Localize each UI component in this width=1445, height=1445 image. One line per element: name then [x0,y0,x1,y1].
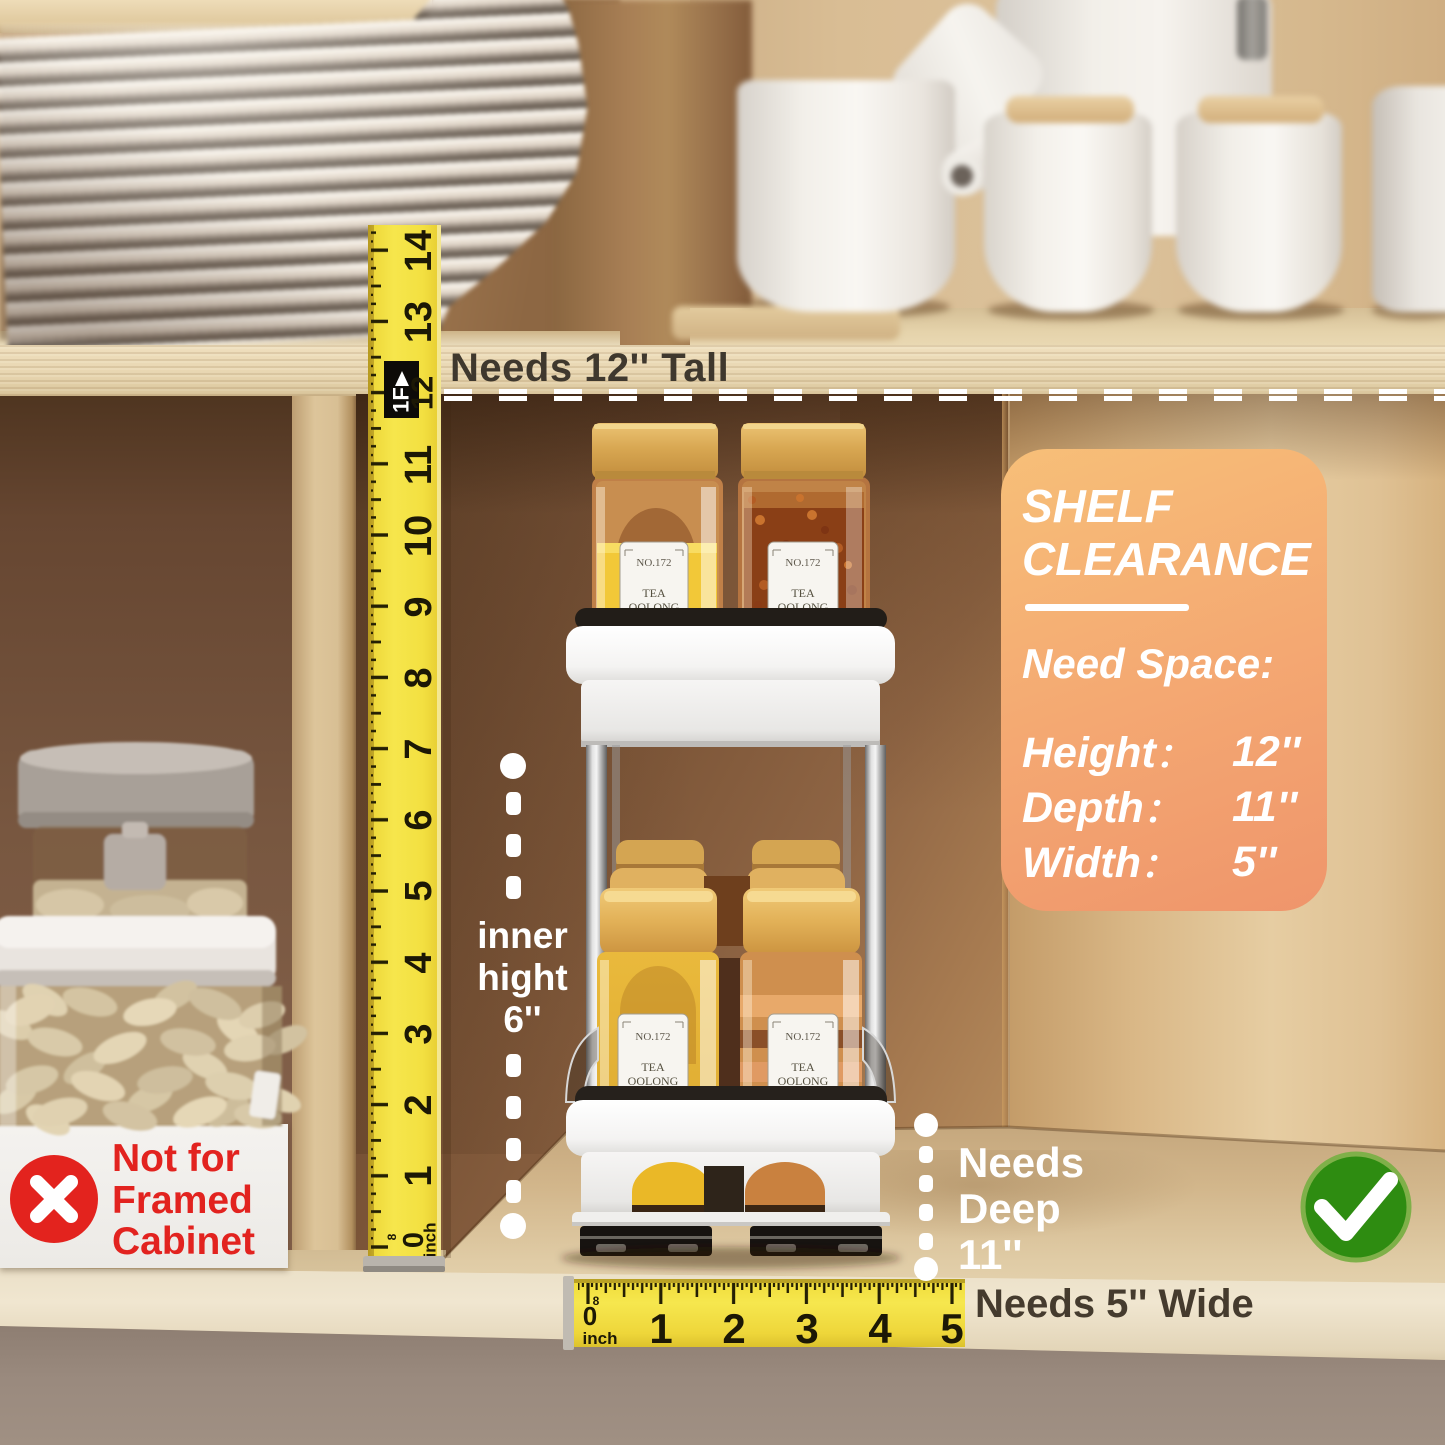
svg-text:inch: inch [421,1223,440,1258]
svg-text:9: 9 [398,596,440,617]
svg-text:10: 10 [398,515,440,557]
svg-text:7: 7 [398,738,440,759]
svg-text:5: 5 [940,1305,963,1352]
svg-text:8: 8 [593,1294,600,1308]
svg-text:TEA: TEA [642,586,666,600]
svg-text:inch: inch [583,1329,618,1348]
svg-text:1: 1 [398,1165,440,1186]
svg-text:11: 11 [398,445,440,485]
svg-text:5: 5 [398,880,440,901]
svg-text:NO.172: NO.172 [635,1031,670,1043]
svg-text:1: 1 [649,1305,672,1352]
svg-text:4: 4 [398,952,440,973]
svg-text:8: 8 [398,667,440,688]
svg-text:3: 3 [795,1305,818,1352]
svg-text:4: 4 [868,1305,892,1352]
svg-text:TEA: TEA [791,1060,815,1074]
svg-text:13: 13 [398,301,440,343]
svg-text:8: 8 [385,1233,399,1240]
svg-text:OOLONG: OOLONG [628,1074,679,1088]
svg-text:NO.172: NO.172 [636,557,671,569]
svg-text:TEA: TEA [641,1060,665,1074]
svg-text:14: 14 [398,230,440,272]
svg-text:12: 12 [405,376,440,410]
svg-text:OOLONG: OOLONG [778,1074,829,1088]
svg-text:6: 6 [398,809,440,830]
svg-text:3: 3 [398,1023,440,1044]
svg-text:NO.172: NO.172 [785,1031,820,1043]
svg-text:2: 2 [722,1305,745,1352]
svg-text:2: 2 [398,1094,440,1115]
svg-text:NO.172: NO.172 [785,557,820,569]
svg-text:TEA: TEA [791,586,815,600]
